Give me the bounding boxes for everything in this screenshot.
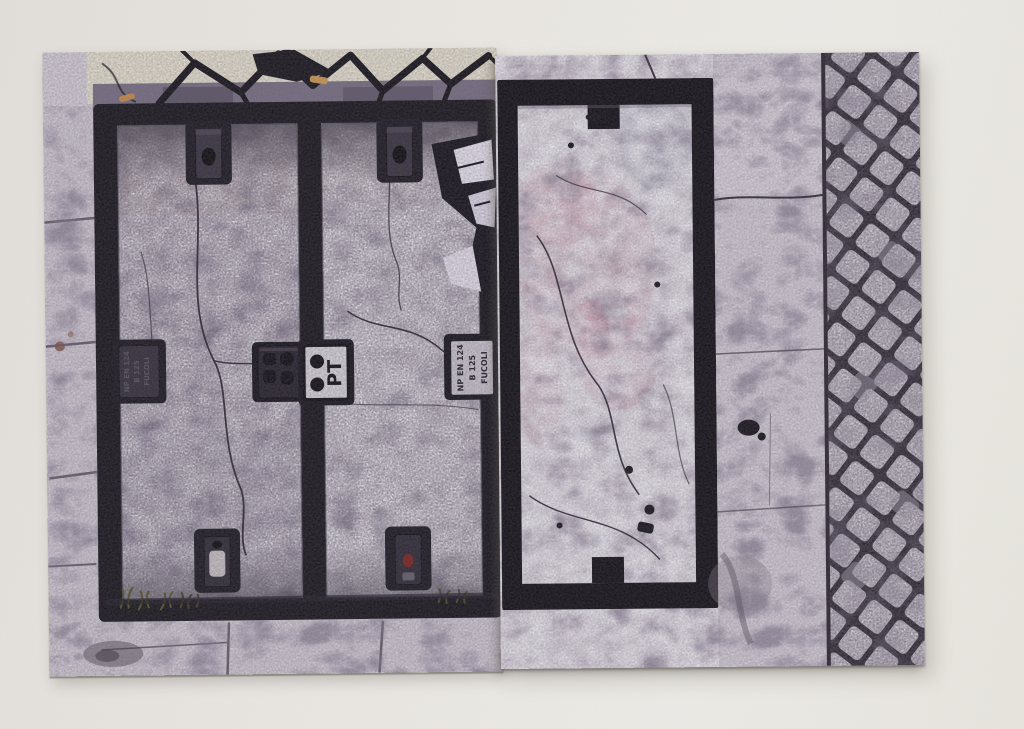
left-print-image: NP EN 124 B 125 FUCOLI [42, 47, 503, 676]
left-print: NP EN 124 B 125 FUCOLI [42, 47, 503, 676]
right-print-image [495, 52, 925, 669]
photo-table-surface: NP EN 124 B 125 FUCOLI [0, 0, 1024, 729]
right-print [495, 52, 925, 669]
texture-overlay [42, 47, 503, 676]
texture-overlay [495, 52, 925, 669]
